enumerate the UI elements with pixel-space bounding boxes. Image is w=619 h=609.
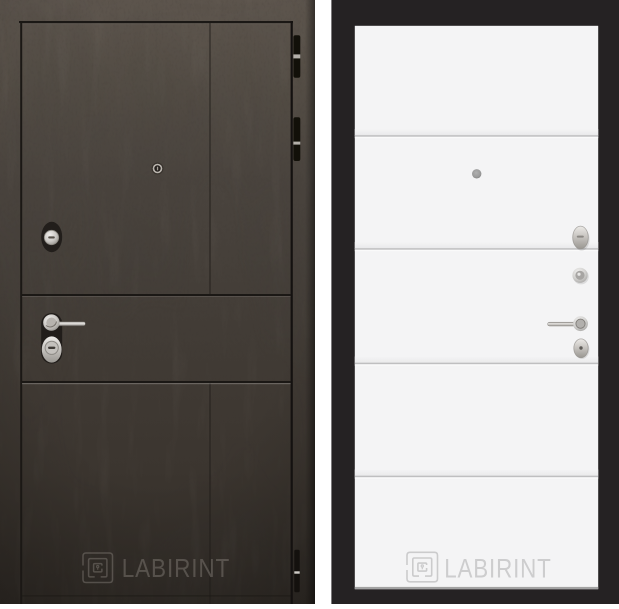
svg-text:LABIRINT: LABIRINT (444, 554, 552, 584)
svg-text:LABIRINT: LABIRINT (122, 553, 231, 583)
